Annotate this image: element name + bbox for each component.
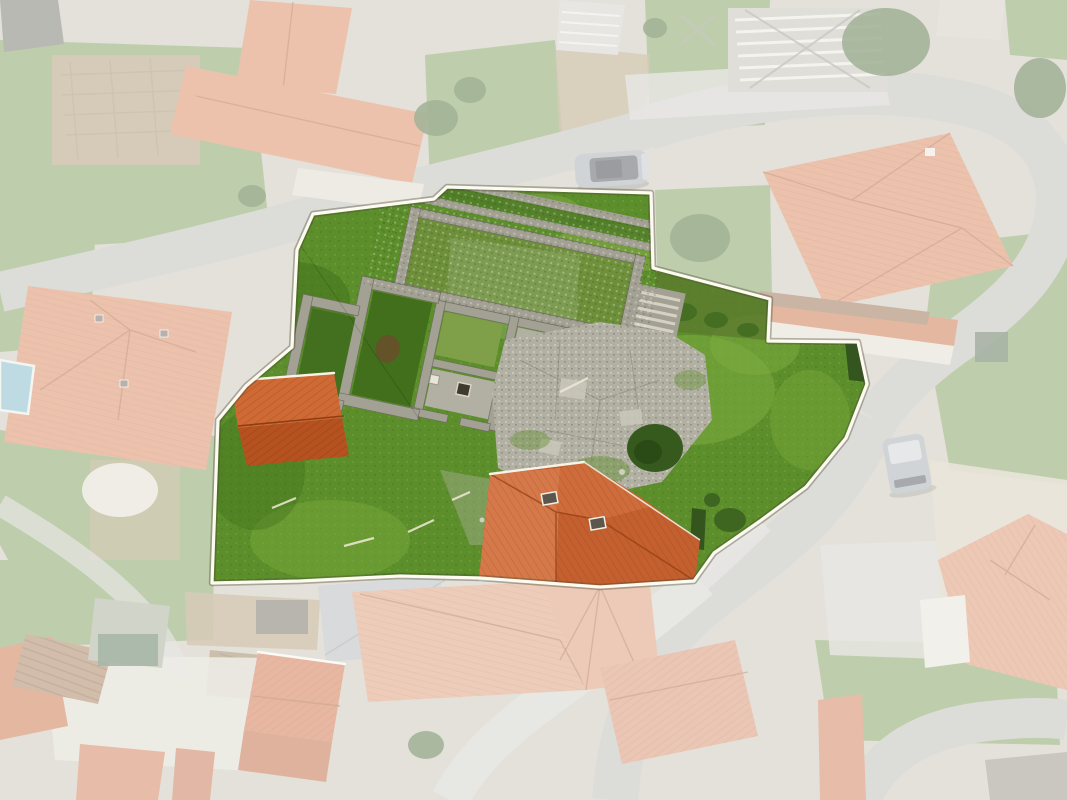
well-hole (456, 382, 471, 396)
moss (510, 430, 550, 450)
skylight (589, 517, 606, 530)
bush (704, 493, 720, 507)
moss (674, 370, 706, 390)
skylight (541, 492, 558, 505)
bush (737, 323, 759, 337)
aerial-photo-canvas (0, 0, 1067, 800)
bush (704, 312, 728, 328)
aerial-photo (0, 0, 1067, 800)
bush (714, 508, 746, 532)
tree-shadow (634, 440, 662, 464)
white-stone (429, 374, 440, 385)
